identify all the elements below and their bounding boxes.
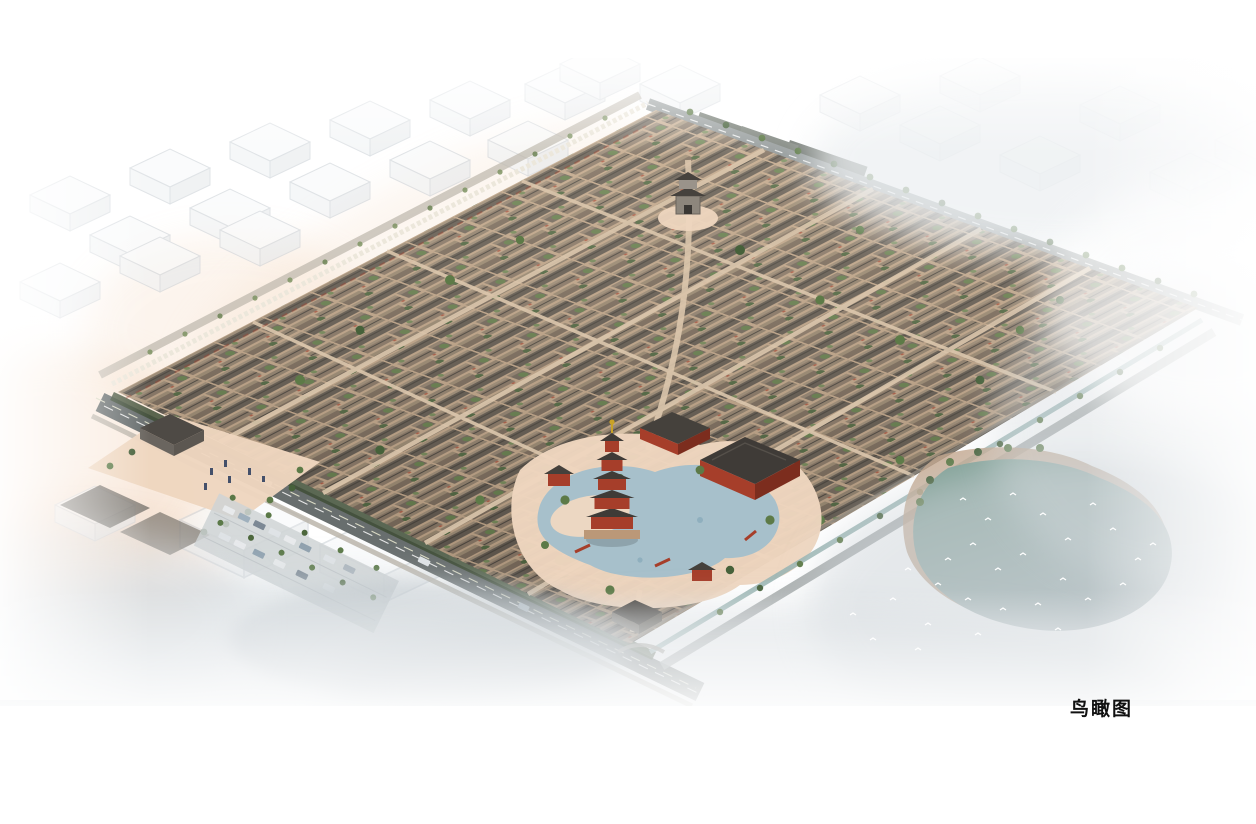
figure-caption: 鸟瞰图 — [1070, 694, 1133, 721]
page-footer: -76- 总体规划设计 Ningyang Wenmiao historic di… — [0, 770, 1256, 824]
aerial-rendering-birdseye — [0, 0, 1256, 824]
album-page: 鸟瞰图 -76- 总体规划设计 Ningyang Wenmiao histori… — [0, 0, 1256, 824]
